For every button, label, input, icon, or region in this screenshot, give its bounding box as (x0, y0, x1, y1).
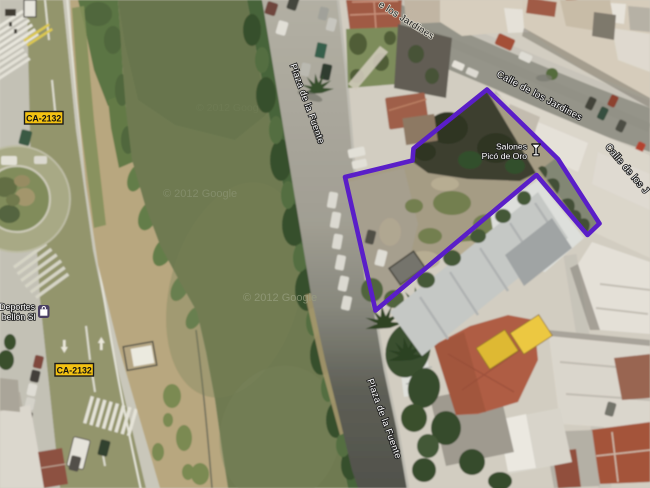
svg-text:© 2012 Google: © 2012 Google (243, 292, 317, 304)
svg-text:bellón Sl: bellón Sl (2, 312, 36, 322)
svg-text:CA-2132: CA-2132 (57, 365, 92, 375)
svg-text:© 2012 Goog: © 2012 Goog (196, 102, 259, 114)
svg-text:Picó de Oro: Picó de Oro (482, 151, 528, 161)
svg-text:Deportes: Deportes (0, 302, 36, 312)
svg-text:CA-2132: CA-2132 (26, 113, 61, 123)
svg-text:Salones: Salones (496, 142, 527, 152)
svg-text:© 2012 Google: © 2012 Google (163, 188, 237, 200)
